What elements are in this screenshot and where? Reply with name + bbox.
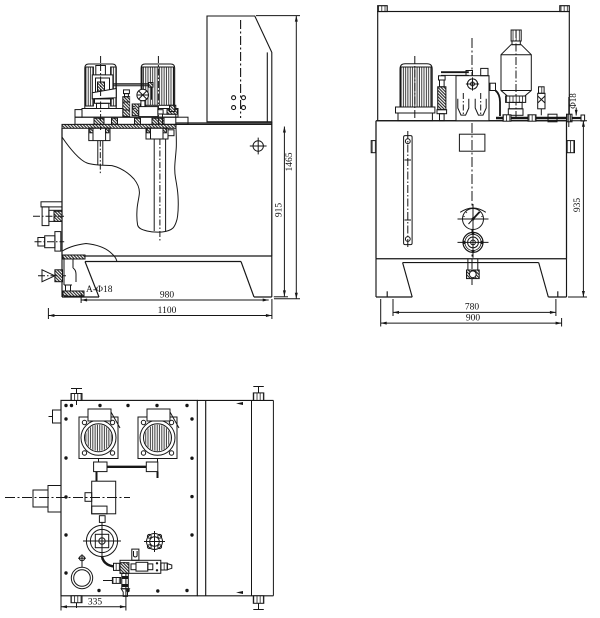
svg-text:980: 980 (160, 291, 175, 301)
svg-text:780: 780 (465, 303, 480, 313)
svg-text:900: 900 (466, 314, 481, 324)
svg-text:Φ18: Φ18 (568, 93, 578, 109)
svg-text:915: 915 (275, 203, 285, 218)
svg-text:935: 935 (573, 198, 583, 213)
svg-text:335: 335 (88, 597, 103, 607)
svg-text:1100: 1100 (158, 306, 177, 316)
svg-text:A-Φ18: A-Φ18 (86, 285, 113, 295)
svg-text:1465: 1465 (285, 152, 295, 171)
